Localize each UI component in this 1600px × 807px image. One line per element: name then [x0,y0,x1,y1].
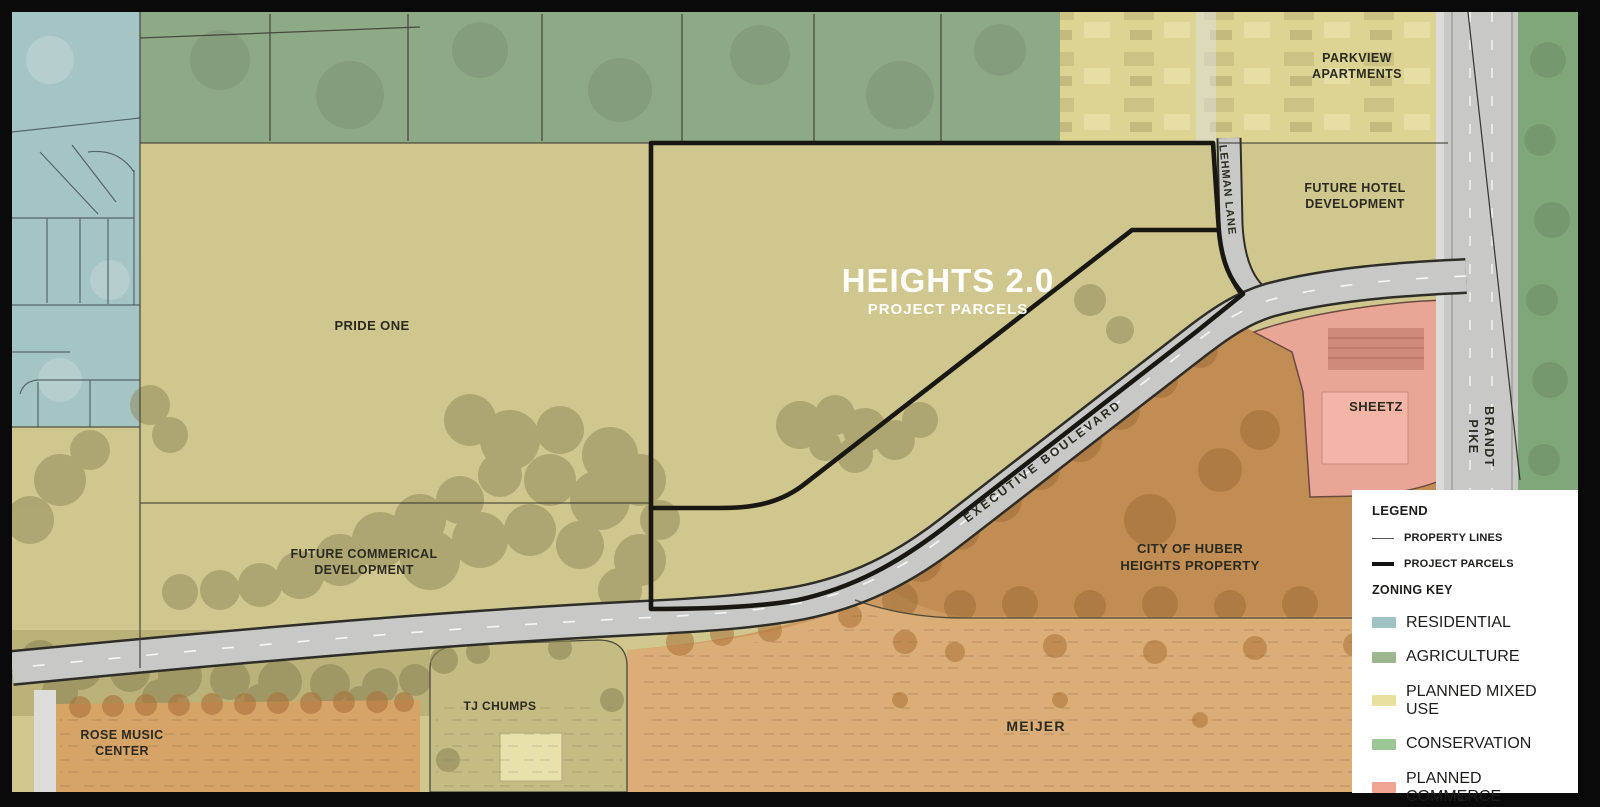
zoning-key-title: ZONING KEY [1372,583,1570,597]
thick-line-swatch [1372,562,1394,566]
zone-label: AGRICULTURE [1406,648,1520,666]
area-label-future-commercial: FUTURE COMMERICAL DEVELOPMENT [268,546,460,578]
legend-zone-agriculture: AGRICULTURE [1372,648,1570,666]
legend-item-label: PROPERTY LINES [1404,532,1503,544]
area-label-city-property: CITY OF HUBER HEIGHTS PROPERTY [1098,541,1282,574]
road-label-brandt-pike: BRANDT PIKE [1465,389,1497,485]
legend-zone-planned-mixed-use: PLANNED MIXED USE [1372,683,1570,719]
project-title-block: HEIGHTS 2.0 PROJECT PARCELS [788,264,1108,318]
zone-color-swatch [1372,652,1396,663]
zone-label: RESIDENTIAL [1406,614,1511,632]
sheetz-solar-canopy [1328,328,1424,370]
legend-item-property-lines: PROPERTY LINES [1372,532,1570,544]
area-label-tj-chumps: TJ CHUMPS [445,699,555,714]
thin-line-swatch [1372,538,1394,539]
area-label-future-hotel: FUTURE HOTEL DEVELOPMENT [1280,180,1430,212]
zone-color-swatch [1372,739,1396,750]
legend-item-label: PROJECT PARCELS [1404,558,1514,570]
legend-panel: LEGEND PROPERTY LINES PROJECT PARCELS ZO… [1352,490,1578,793]
zone-color-swatch [1372,617,1396,628]
area-label-pride-one: PRIDE ONE [312,318,432,335]
area-label-rose-music-center: ROSE MUSIC CENTER [66,727,178,759]
zone-color-swatch [1372,782,1396,793]
left-side-road [34,690,56,792]
zoning-map-screenshot: PARKVIEW APARTMENTS FUTURE HOTEL DEVELOP… [0,0,1600,807]
area-label-sheetz: SHEETZ [1338,399,1414,416]
project-title: HEIGHTS 2.0 [788,264,1108,297]
zone-label: CONSERVATION [1406,735,1531,753]
project-subtitle: PROJECT PARCELS [788,301,1108,318]
legend-zone-conservation: CONSERVATION [1372,735,1570,753]
legend-item-project-parcels: PROJECT PARCELS [1372,558,1570,570]
legend-zone-planned-commerce: PLANNED COMMERCE [1372,770,1570,806]
zone-color-swatch [1372,695,1396,706]
parkview-lane-strip [1196,12,1216,143]
legend-title: LEGEND [1372,503,1570,518]
area-label-parkview-apartments: PARKVIEW APARTMENTS [1282,50,1432,82]
zone-label: PLANNED COMMERCE [1406,770,1570,806]
zone-label: PLANNED MIXED USE [1406,683,1570,719]
legend-zone-residential: RESIDENTIAL [1372,614,1570,632]
area-label-meijer: MEIJER [995,718,1077,736]
